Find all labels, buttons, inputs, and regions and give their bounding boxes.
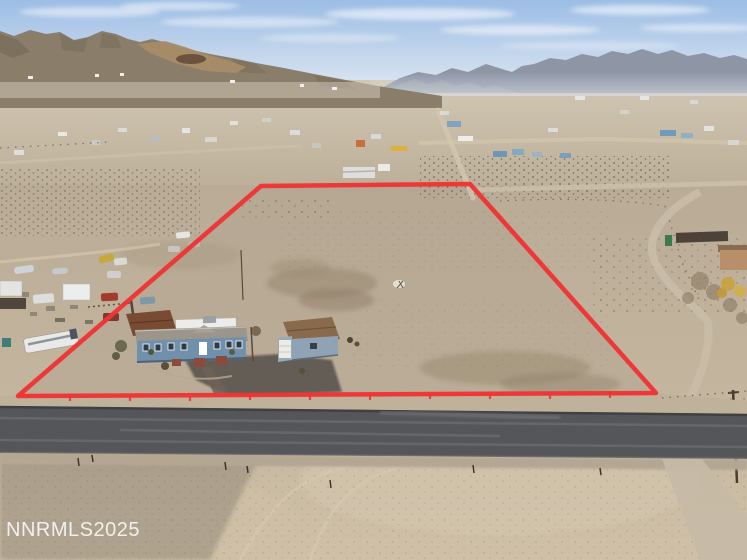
teal-bin [2, 338, 11, 347]
box-trailer [63, 284, 90, 300]
red-truck [101, 293, 118, 302]
green-bin [665, 235, 672, 246]
orange-building [356, 140, 365, 147]
aerial-photo: NNRMLS2025 [0, 0, 747, 560]
aerial-photo-canvas [0, 0, 747, 560]
yellow-bus [391, 146, 407, 151]
awning-structure [676, 231, 728, 243]
white-van [33, 293, 55, 304]
foreground-terrain [0, 156, 747, 560]
tan-building [720, 250, 747, 270]
bald-hill-dark-patch [176, 54, 206, 64]
garage [278, 317, 340, 362]
blue-house [447, 121, 461, 127]
blue-trailer [660, 130, 676, 136]
mls-watermark: NNRMLS2025 [6, 519, 140, 542]
front-door [199, 342, 207, 355]
garage-door [279, 340, 291, 358]
